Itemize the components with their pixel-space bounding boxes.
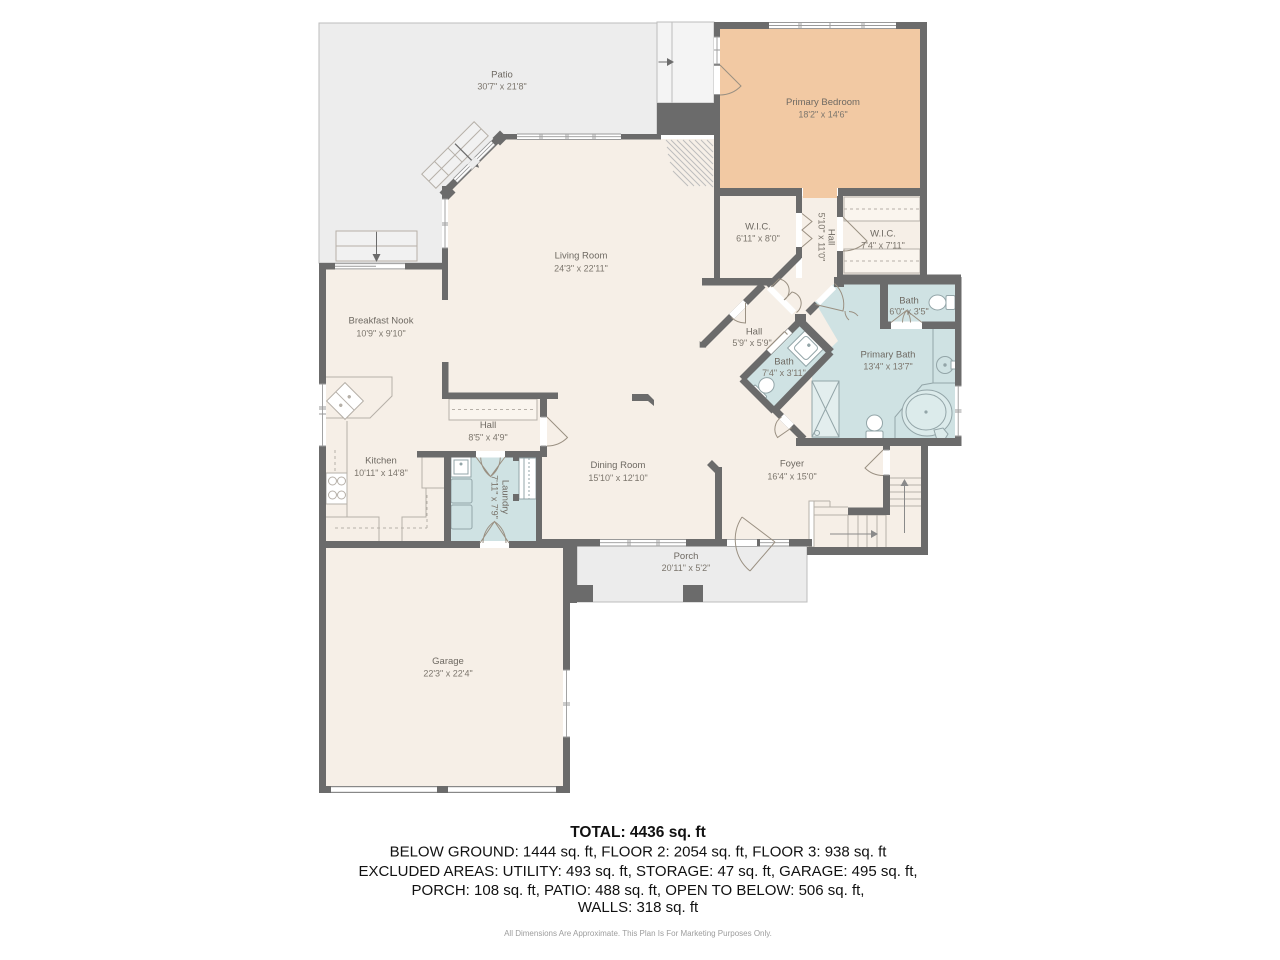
svg-text:7'11" x 7'9": 7'11" x 7'9" (490, 475, 500, 519)
svg-text:5'9" x 5'9": 5'9" x 5'9" (732, 338, 771, 348)
svg-text:Bath: Bath (774, 357, 794, 368)
svg-text:10'11" x 14'8": 10'11" x 14'8" (354, 468, 408, 478)
svg-text:7'4" x 3'11": 7'4" x 3'11" (762, 368, 806, 378)
svg-text:16'4" x 15'0": 16'4" x 15'0" (767, 472, 816, 482)
svg-text:6'11" x 8'0": 6'11" x 8'0" (736, 234, 780, 244)
svg-text:All Dimensions Are Approximate: All Dimensions Are Approximate. This Pla… (504, 929, 772, 938)
svg-text:W.I.C.: W.I.C. (870, 229, 896, 240)
svg-text:30'7" x 21'8": 30'7" x 21'8" (477, 82, 526, 92)
svg-text:24'3" x 22'11": 24'3" x 22'11" (554, 264, 608, 274)
svg-text:WALLS: 318 sq. ft: WALLS: 318 sq. ft (578, 899, 699, 916)
svg-text:Patio: Patio (491, 70, 513, 81)
svg-text:6'0" x 3'5": 6'0" x 3'5" (889, 307, 928, 317)
svg-text:15'10" x 12'10": 15'10" x 12'10" (588, 473, 647, 483)
svg-text:Primary Bath: Primary Bath (861, 350, 916, 361)
svg-text:Garage: Garage (432, 656, 464, 667)
svg-text:Dining Room: Dining Room (591, 460, 646, 471)
svg-text:7'4" x 7'11": 7'4" x 7'11" (861, 241, 905, 251)
svg-text:Hall: Hall (826, 229, 837, 245)
svg-text:Primary Bedroom: Primary Bedroom (786, 97, 860, 108)
svg-text:Laundry: Laundry (500, 480, 511, 515)
svg-text:Kitchen: Kitchen (365, 456, 397, 467)
svg-text:TOTAL: 4436 sq. ft: TOTAL: 4436 sq. ft (570, 824, 706, 841)
svg-text:Hall: Hall (746, 327, 762, 338)
svg-text:13'4" x 13'7": 13'4" x 13'7" (863, 362, 912, 372)
svg-text:W.I.C.: W.I.C. (745, 222, 771, 233)
svg-text:8'5" x 4'9": 8'5" x 4'9" (468, 433, 507, 443)
svg-text:EXCLUDED AREAS: UTILITY: 493 s: EXCLUDED AREAS: UTILITY: 493 sq. ft, STO… (358, 863, 917, 880)
svg-text:BELOW GROUND: 1444 sq. ft, FLO: BELOW GROUND: 1444 sq. ft, FLOOR 2: 2054… (390, 844, 888, 861)
svg-text:Hall: Hall (480, 420, 496, 431)
svg-text:5'10" x 11'0": 5'10" x 11'0" (817, 213, 827, 262)
svg-text:Porch: Porch (674, 551, 699, 562)
svg-text:10'9" x 9'10": 10'9" x 9'10" (356, 329, 405, 339)
svg-text:Foyer: Foyer (780, 459, 804, 470)
svg-text:PORCH: 108 sq. ft, PATIO: 488: PORCH: 108 sq. ft, PATIO: 488 sq. ft, OP… (412, 882, 865, 899)
svg-text:Bath: Bath (899, 296, 919, 307)
svg-text:Breakfast Nook: Breakfast Nook (349, 316, 414, 327)
svg-text:22'3" x 22'4": 22'3" x 22'4" (423, 669, 472, 679)
svg-text:18'2" x 14'6": 18'2" x 14'6" (798, 110, 847, 120)
svg-text:Living Room: Living Room (555, 251, 608, 262)
svg-text:20'11" x 5'2": 20'11" x 5'2" (662, 563, 711, 573)
